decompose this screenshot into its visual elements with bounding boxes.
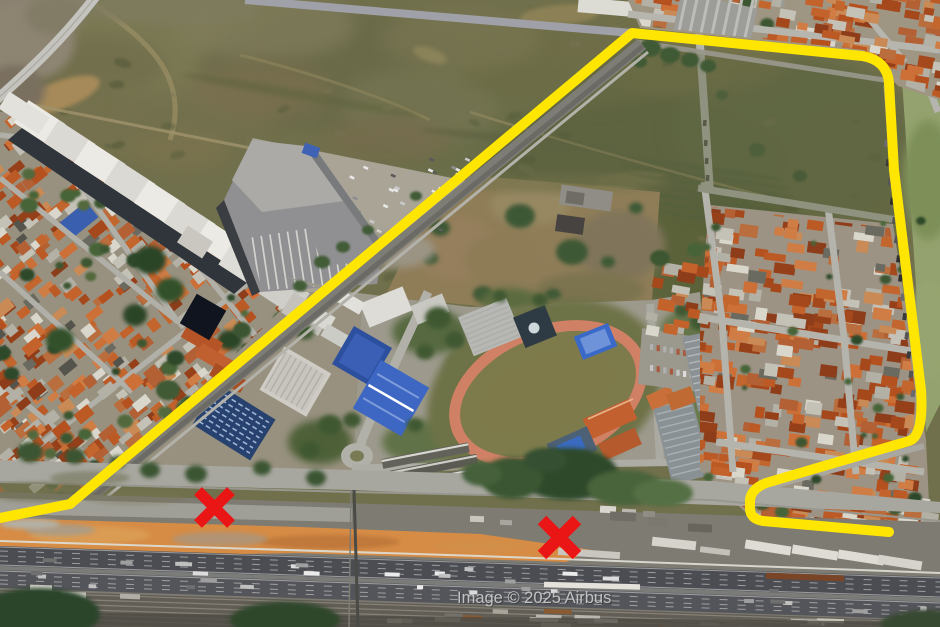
svg-text:Image © 2025 Airbus: Image © 2025 Airbus (457, 589, 611, 607)
